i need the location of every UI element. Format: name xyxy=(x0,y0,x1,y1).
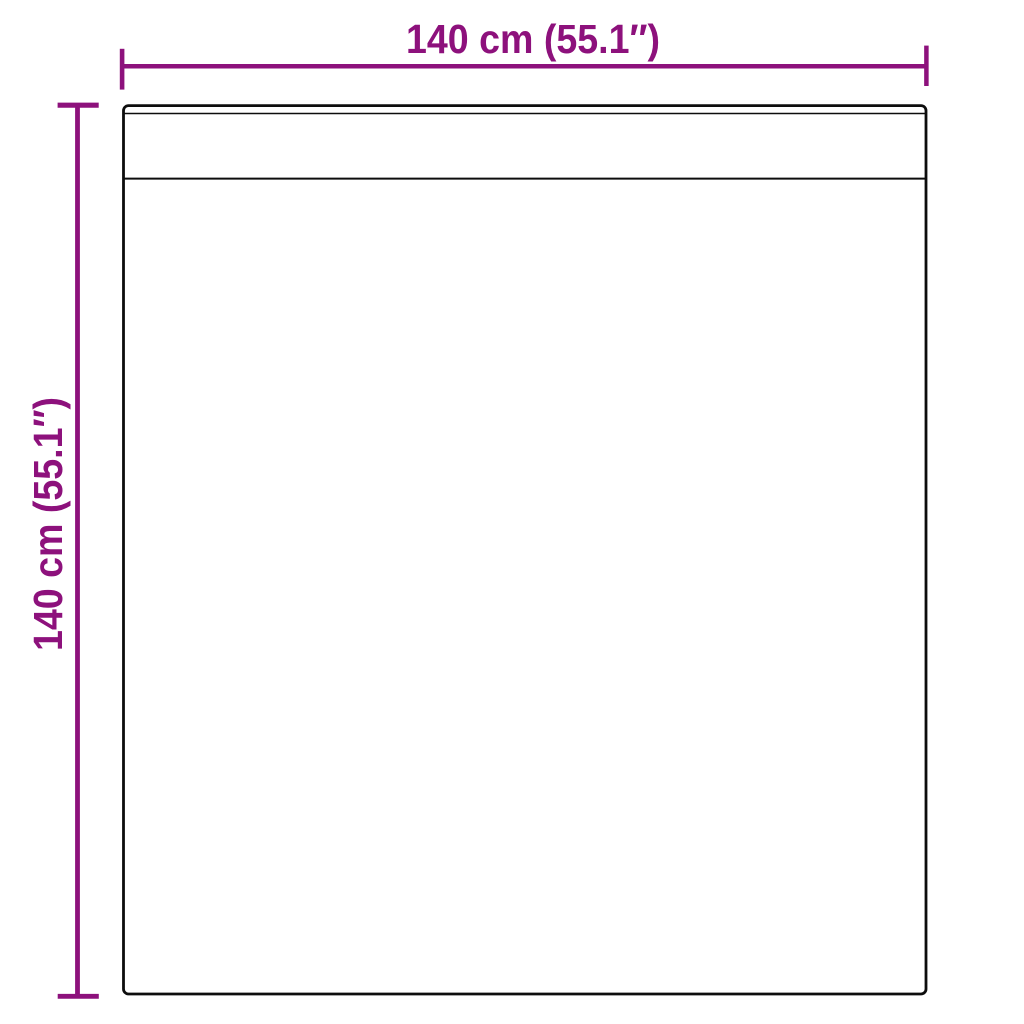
svg-text:140 cm (55.1″): 140 cm (55.1″) xyxy=(25,397,71,651)
svg-text:140 cm (55.1″): 140 cm (55.1″) xyxy=(406,16,660,62)
